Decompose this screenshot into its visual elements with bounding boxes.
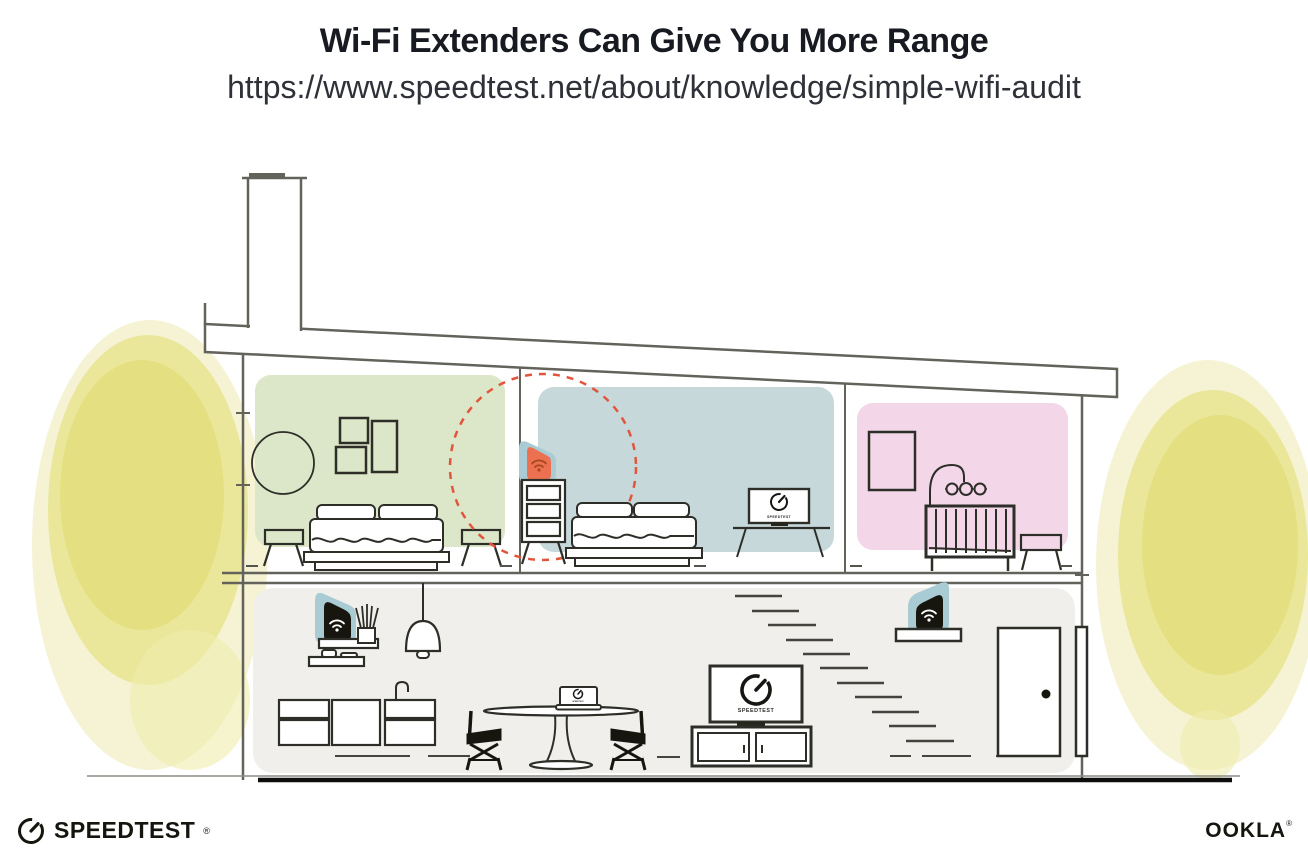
speedtest-trademark: ® — [203, 827, 210, 836]
infographic-page: Wi-Fi Extenders Can Give You More Range … — [0, 0, 1308, 861]
shelf-right — [896, 629, 961, 641]
foliage-right — [1096, 360, 1308, 780]
stool-legs — [1022, 550, 1061, 570]
speedtest-logo: SPEEDTEST® — [16, 815, 210, 845]
console-door — [698, 733, 749, 761]
dish — [341, 653, 357, 657]
ookla-trademark: ® — [1286, 819, 1292, 828]
chimney-mask — [250, 320, 300, 332]
mattress — [572, 517, 696, 548]
pillow — [577, 503, 632, 517]
cabinet-drawer — [279, 720, 329, 745]
shelf-lower — [309, 657, 364, 666]
bed-base — [566, 548, 702, 558]
living-tv-label: SPEEDTEST — [738, 708, 775, 714]
bedroom-tv-label: SPEEDTEST — [767, 515, 792, 519]
pillow — [379, 505, 437, 520]
cabinet-drawer — [385, 700, 435, 718]
table-base — [530, 761, 592, 769]
lamp-shade — [406, 621, 440, 651]
bed-base-2 — [315, 562, 437, 570]
cabinet-drawer — [385, 720, 435, 745]
mobile-bead — [975, 484, 986, 495]
plant-pot — [358, 628, 375, 643]
bowl — [322, 650, 336, 657]
nightstand-legs — [462, 544, 501, 566]
door-knob — [1042, 690, 1051, 699]
laptop-base — [556, 705, 601, 710]
nightstand-legs — [264, 544, 303, 566]
laptop-label: SPEEDTEST — [572, 701, 584, 703]
foliage-left — [32, 320, 268, 770]
crib-legs — [932, 557, 1008, 571]
ookla-logo-text: OOKLA — [1205, 819, 1286, 842]
mattress — [310, 519, 443, 552]
pillow — [634, 503, 689, 517]
mobile-bead — [960, 483, 972, 495]
console-door — [756, 733, 806, 761]
speedtest-gauge-icon — [16, 815, 46, 845]
ookla-logo: OOKLA® — [1205, 819, 1292, 843]
bed-base-2 — [575, 558, 689, 566]
door-sidelight — [1076, 627, 1087, 756]
tv-neck — [771, 522, 788, 526]
cabinet-door — [332, 700, 380, 745]
speedtest-logo-text: SPEEDTEST — [54, 817, 195, 844]
cabinet-drawer — [279, 700, 329, 718]
house-illustration: SPEEDTEST — [0, 0, 1308, 861]
lamp-bulb — [417, 651, 429, 658]
bed-base — [304, 552, 449, 562]
pillow — [317, 505, 375, 520]
mobile-bead — [947, 484, 958, 495]
nursery-pink-bg — [857, 403, 1068, 550]
tv-stand-neck — [737, 722, 765, 726]
front-door — [998, 628, 1060, 756]
